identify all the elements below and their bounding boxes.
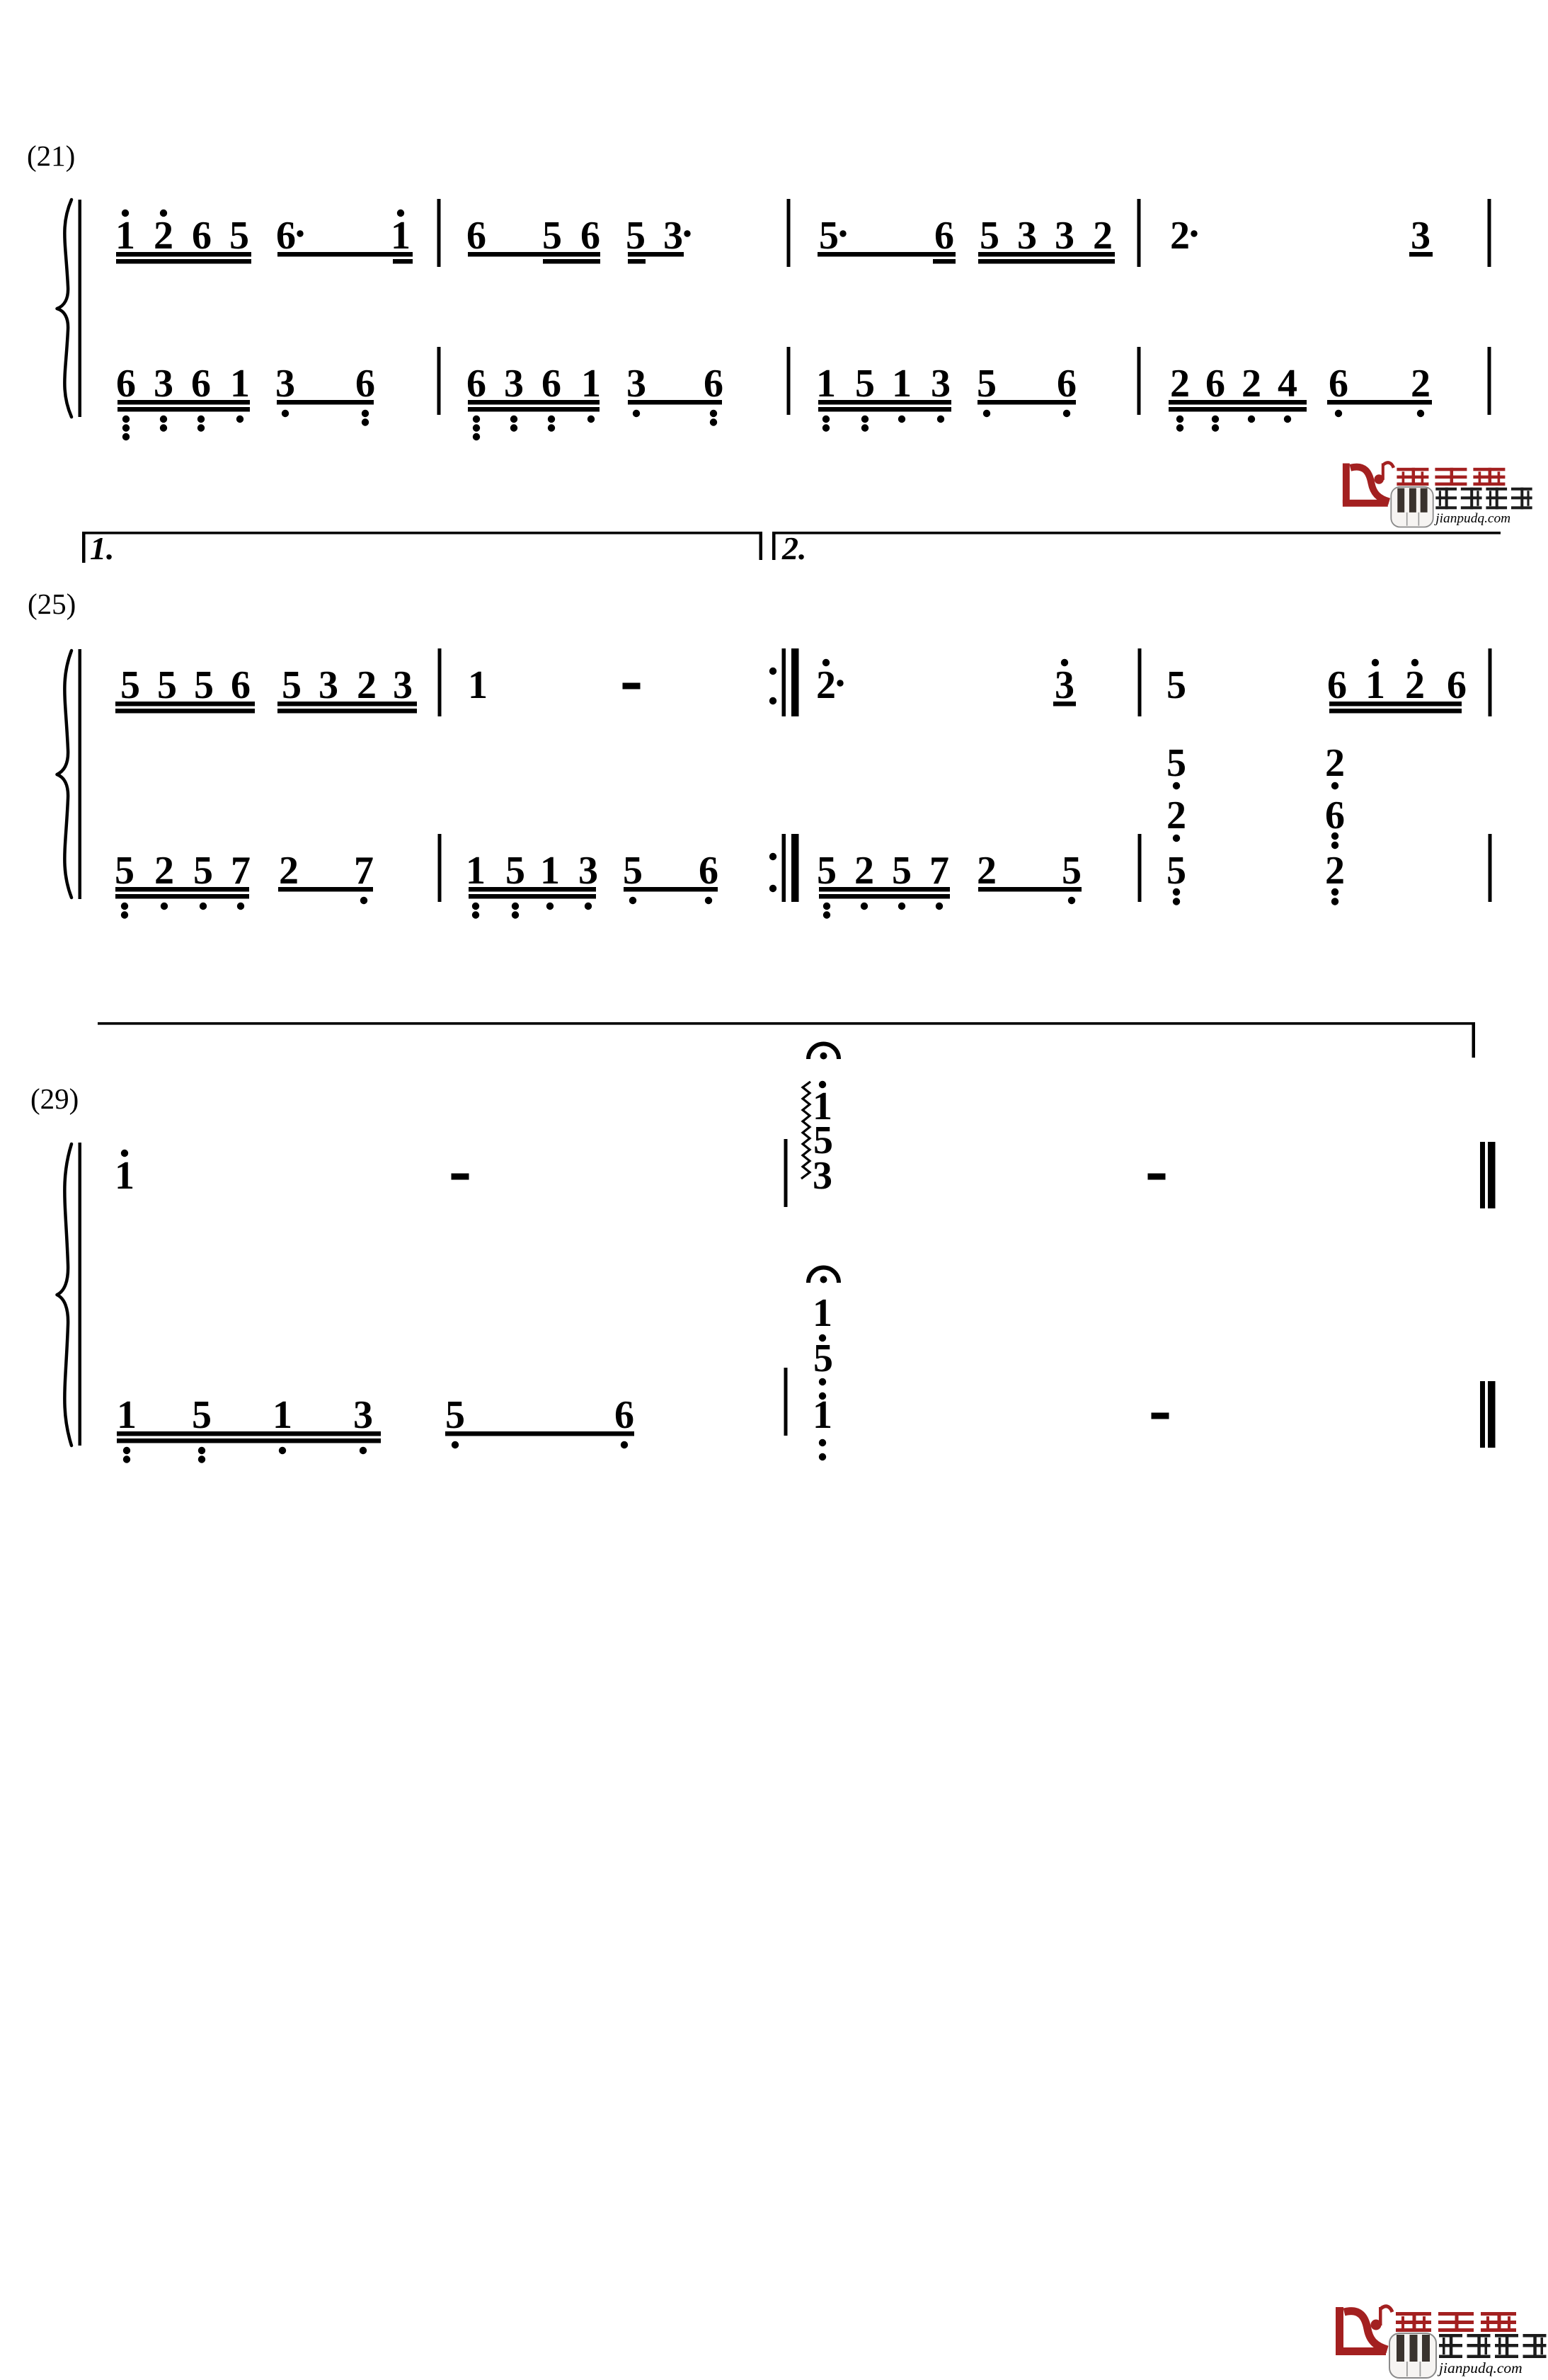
svg-text:5: 5 bbox=[1166, 663, 1186, 707]
svg-text:2: 2 bbox=[1325, 741, 1345, 785]
svg-text:2: 2 bbox=[357, 663, 377, 707]
svg-text:5: 5 bbox=[626, 214, 646, 258]
svg-text:3: 3 bbox=[504, 362, 524, 406]
svg-text:5: 5 bbox=[1166, 741, 1186, 785]
svg-text:5: 5 bbox=[980, 214, 999, 258]
svg-text:5: 5 bbox=[542, 214, 562, 258]
svg-text:(29): (29) bbox=[30, 1082, 79, 1115]
svg-text:6: 6 bbox=[466, 214, 486, 258]
svg-text:6: 6 bbox=[466, 362, 486, 406]
svg-text:1: 1 bbox=[892, 362, 912, 406]
svg-text:1: 1 bbox=[391, 214, 411, 258]
svg-text:2.: 2. bbox=[781, 530, 807, 566]
svg-text:5: 5 bbox=[819, 214, 839, 258]
svg-text:5: 5 bbox=[505, 849, 525, 893]
svg-text:6: 6 bbox=[1325, 794, 1345, 837]
svg-text:3: 3 bbox=[1055, 214, 1074, 258]
svg-text:3: 3 bbox=[275, 362, 295, 406]
svg-text:5: 5 bbox=[977, 362, 997, 406]
svg-text:(25): (25) bbox=[28, 588, 76, 620]
svg-text:3: 3 bbox=[931, 362, 951, 406]
svg-text:2: 2 bbox=[1166, 794, 1186, 837]
svg-text:1: 1 bbox=[466, 849, 486, 893]
svg-text:2: 2 bbox=[279, 849, 299, 893]
svg-text:jianpudq.com: jianpudq.com bbox=[1437, 2359, 1523, 2376]
svg-text:5: 5 bbox=[813, 1337, 833, 1380]
svg-text:2: 2 bbox=[977, 849, 997, 893]
svg-text:2: 2 bbox=[1170, 214, 1190, 258]
svg-text:7: 7 bbox=[231, 849, 251, 893]
svg-text:2: 2 bbox=[1325, 849, 1345, 893]
svg-text:3: 3 bbox=[578, 849, 598, 893]
svg-text:3: 3 bbox=[154, 362, 173, 406]
svg-text:5: 5 bbox=[623, 849, 643, 893]
svg-text:2: 2 bbox=[1170, 362, 1190, 406]
svg-text:2: 2 bbox=[154, 849, 174, 893]
svg-text:6: 6 bbox=[1329, 362, 1348, 406]
svg-text:5: 5 bbox=[193, 849, 213, 893]
svg-text:5: 5 bbox=[1062, 849, 1082, 893]
svg-text:1: 1 bbox=[230, 362, 250, 406]
svg-text:3: 3 bbox=[663, 214, 683, 258]
svg-text:1: 1 bbox=[115, 1154, 134, 1198]
svg-text:4: 4 bbox=[1278, 362, 1297, 406]
svg-text:2: 2 bbox=[1405, 663, 1425, 707]
svg-text:1: 1 bbox=[117, 1393, 137, 1437]
svg-text:3: 3 bbox=[626, 362, 646, 406]
svg-text:6: 6 bbox=[191, 362, 211, 406]
svg-text:5: 5 bbox=[229, 214, 249, 258]
svg-text:5: 5 bbox=[855, 362, 875, 406]
svg-text:5: 5 bbox=[817, 849, 837, 893]
svg-text:1: 1 bbox=[816, 362, 836, 406]
svg-text:1: 1 bbox=[581, 362, 601, 406]
svg-text:2: 2 bbox=[816, 663, 836, 707]
svg-text:3: 3 bbox=[353, 1393, 373, 1437]
svg-text:5: 5 bbox=[120, 663, 140, 707]
svg-text:3: 3 bbox=[1411, 214, 1431, 258]
svg-text:2: 2 bbox=[154, 214, 173, 258]
svg-text:2: 2 bbox=[854, 849, 874, 893]
svg-text:6: 6 bbox=[355, 362, 375, 406]
svg-text:5: 5 bbox=[115, 849, 134, 893]
svg-text:6: 6 bbox=[580, 214, 600, 258]
svg-text:2: 2 bbox=[1093, 214, 1113, 258]
svg-text:1: 1 bbox=[273, 1393, 292, 1437]
svg-text:1: 1 bbox=[115, 214, 135, 258]
svg-text:6: 6 bbox=[699, 849, 718, 893]
svg-text:5: 5 bbox=[445, 1393, 465, 1437]
svg-text:5: 5 bbox=[192, 1393, 212, 1437]
svg-text:(21): (21) bbox=[27, 139, 75, 172]
svg-text:3: 3 bbox=[1017, 214, 1037, 258]
svg-text:3: 3 bbox=[319, 663, 338, 707]
svg-text:6: 6 bbox=[231, 663, 251, 707]
svg-text:5: 5 bbox=[892, 849, 912, 893]
svg-text:6: 6 bbox=[704, 362, 723, 406]
svg-text:1: 1 bbox=[1365, 663, 1385, 707]
svg-text:6: 6 bbox=[614, 1393, 634, 1437]
svg-text:6: 6 bbox=[1205, 362, 1225, 406]
svg-text:7: 7 bbox=[354, 849, 374, 893]
svg-text:1: 1 bbox=[813, 1291, 832, 1335]
svg-text:3: 3 bbox=[1055, 663, 1074, 707]
svg-text:6: 6 bbox=[116, 362, 136, 406]
svg-text:6: 6 bbox=[1327, 663, 1347, 707]
svg-text:5: 5 bbox=[1166, 849, 1186, 893]
svg-text:3: 3 bbox=[813, 1154, 832, 1198]
svg-text:6: 6 bbox=[934, 214, 954, 258]
svg-text:1.: 1. bbox=[90, 530, 115, 566]
svg-text:6: 6 bbox=[1057, 362, 1077, 406]
svg-text:6: 6 bbox=[541, 362, 561, 406]
svg-text:1: 1 bbox=[813, 1393, 832, 1437]
svg-text:3: 3 bbox=[393, 663, 413, 707]
svg-text:6: 6 bbox=[192, 214, 212, 258]
svg-text:5: 5 bbox=[157, 663, 177, 707]
svg-text:1: 1 bbox=[468, 663, 488, 707]
svg-text:6: 6 bbox=[276, 214, 296, 258]
svg-text:2: 2 bbox=[1411, 362, 1431, 406]
svg-text:1: 1 bbox=[540, 849, 560, 893]
svg-text:7: 7 bbox=[929, 849, 949, 893]
svg-text:5: 5 bbox=[194, 663, 214, 707]
svg-text:2: 2 bbox=[1242, 362, 1261, 406]
svg-text:5: 5 bbox=[282, 663, 302, 707]
svg-text:6: 6 bbox=[1447, 663, 1467, 707]
